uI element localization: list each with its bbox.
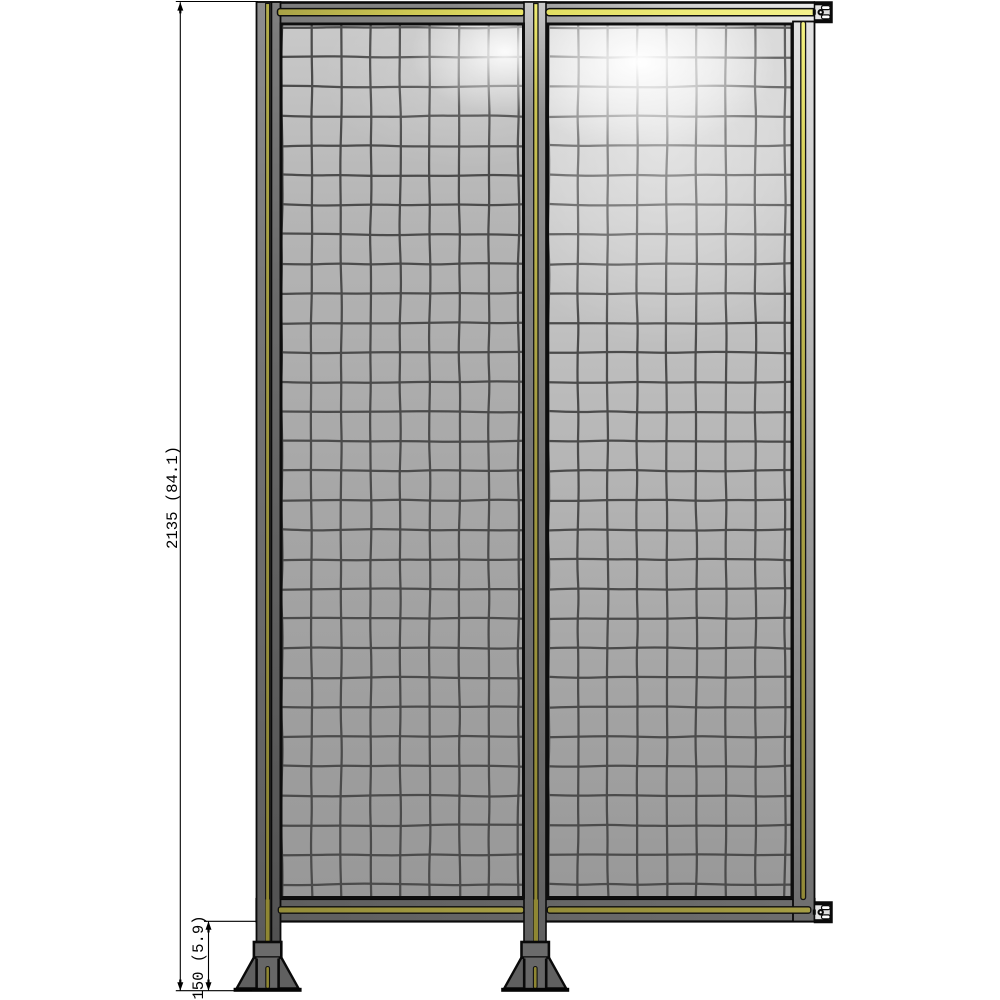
svg-text:2135 (84.1): 2135 (84.1) xyxy=(164,446,182,549)
svg-text:150 (5.9): 150 (5.9) xyxy=(190,915,208,999)
